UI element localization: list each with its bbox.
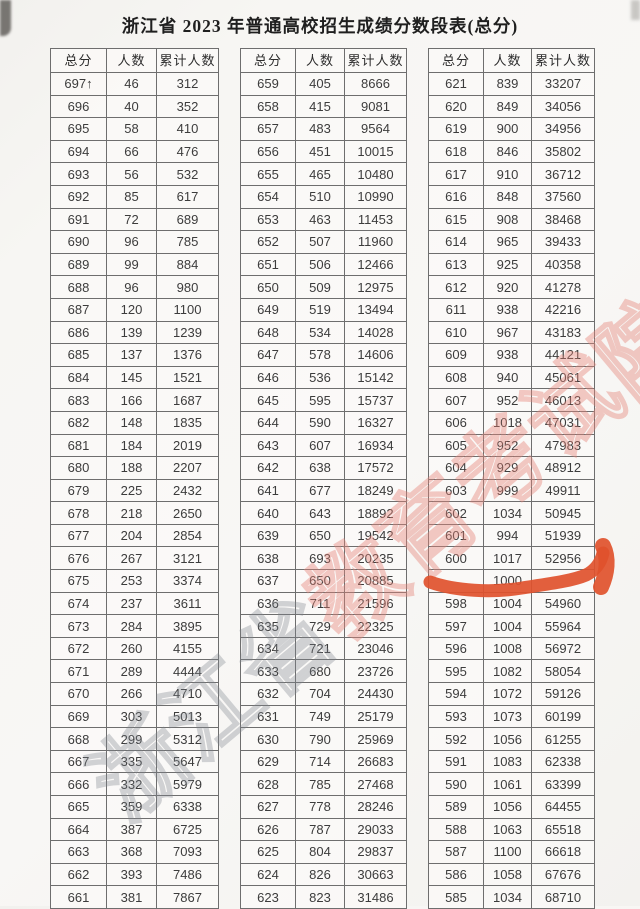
table-row: 61292041278 <box>429 276 595 299</box>
table-cell: 260 <box>107 637 157 660</box>
table-cell: 669 <box>51 705 107 728</box>
table-row: 62580429837 <box>241 841 407 864</box>
table-cell: 994 <box>484 524 532 547</box>
table-cell: 688 <box>51 276 107 299</box>
table-cell: 393 <box>107 863 157 886</box>
table-cell: 410 <box>157 118 219 141</box>
table-cell: 884 <box>157 253 219 276</box>
table-cell: 826 <box>296 863 345 886</box>
table-cell: 25969 <box>345 728 407 751</box>
table-cell: 5979 <box>157 773 219 796</box>
table-cell: 507 <box>296 231 345 254</box>
table-cell: 465 <box>296 163 345 186</box>
table-row: 6673355647 <box>51 750 219 773</box>
table-cell: 610 <box>429 321 484 344</box>
table-row: 62971426683 <box>241 750 407 773</box>
table-cell: 684 <box>51 366 107 389</box>
table-cell: 46013 <box>532 389 595 412</box>
table-cell: 10015 <box>345 140 407 163</box>
table-cell: 56 <box>107 163 157 186</box>
table-row: 62678729033 <box>241 818 407 841</box>
table-row: 68999884 <box>51 253 219 276</box>
col-header-cumulative: 累计人数 <box>345 49 407 73</box>
table-cell: 597 <box>429 615 484 638</box>
table-cell: 643 <box>296 502 345 525</box>
table-cell: 11960 <box>345 231 407 254</box>
table-cell: 4710 <box>157 683 219 706</box>
table-cell: 609 <box>429 344 484 367</box>
table-cell: 615 <box>429 208 484 231</box>
table-cell: 63399 <box>532 773 595 796</box>
table-cell: 29837 <box>345 841 407 864</box>
table-cell: 657 <box>241 118 296 141</box>
table-cell: 381 <box>107 886 157 909</box>
table-cell: 1082 <box>484 660 532 683</box>
table-cell: 49911 <box>532 479 595 502</box>
table-cell: 650 <box>241 276 296 299</box>
table-row: 591108362338 <box>429 750 595 773</box>
table-row: 65250711960 <box>241 231 407 254</box>
table-cell: 1004 <box>484 592 532 615</box>
table-row: 69096785 <box>51 231 219 254</box>
table-cell: 40358 <box>532 253 595 276</box>
table-cell: 2019 <box>157 434 219 457</box>
table-row: 6821481835 <box>51 411 219 434</box>
table-row: 62482630663 <box>241 863 407 886</box>
table-cell: 96 <box>107 276 157 299</box>
table-cell: 61255 <box>532 728 595 751</box>
table-cell: 23046 <box>345 637 407 660</box>
table-cell: 691 <box>51 208 107 231</box>
table-cell: 483 <box>296 118 345 141</box>
table-cell: 711 <box>296 592 345 615</box>
table-row: 598100454960 <box>429 592 595 615</box>
table-row: 6693035013 <box>51 705 219 728</box>
table-cell: 690 <box>51 231 107 254</box>
table-cell: 605 <box>429 434 484 457</box>
table-cell: 1056 <box>484 796 532 819</box>
table-cell: 680 <box>296 660 345 683</box>
table-cell: 602 <box>429 502 484 525</box>
table-row: 6722604155 <box>51 637 219 660</box>
table-row: 64263817572 <box>241 457 407 480</box>
table-cell: 667 <box>51 750 107 773</box>
table-cell: 15737 <box>345 389 407 412</box>
table-cell: 51939 <box>532 524 595 547</box>
table-cell: 908 <box>484 208 532 231</box>
table-cell: 1083 <box>484 750 532 773</box>
table-cell: 641 <box>241 479 296 502</box>
table-cell: 24430 <box>345 683 407 706</box>
table-row: 6792252432 <box>51 479 219 502</box>
table-cell: 34956 <box>532 118 595 141</box>
table-cell: 9564 <box>345 118 407 141</box>
table-cell: 592 <box>429 728 484 751</box>
table-cell: 43183 <box>532 321 595 344</box>
table-row: 63472123046 <box>241 637 407 660</box>
table-cell: 687 <box>51 298 107 321</box>
table-cell: 10990 <box>345 185 407 208</box>
table-row: 61193842216 <box>429 298 595 321</box>
table-cell: 785 <box>157 231 219 254</box>
table-cell: 635 <box>241 615 296 638</box>
table-cell: 640 <box>241 502 296 525</box>
table-cell: 607 <box>296 434 345 457</box>
table-cell: 677 <box>296 479 345 502</box>
table-cell: 664 <box>51 818 107 841</box>
table-row: 587110066618 <box>429 841 595 864</box>
table-cell: 37560 <box>532 185 595 208</box>
table-cell: 749 <box>296 705 345 728</box>
table-cell: 52956 <box>532 547 595 570</box>
table-cell: 790 <box>296 728 345 751</box>
table-cell: 56972 <box>532 637 595 660</box>
table-cell: 628 <box>241 773 296 796</box>
table-row: 62382331486 <box>241 886 407 909</box>
table-row: 65451010990 <box>241 185 407 208</box>
table-cell: 940 <box>484 366 532 389</box>
table-cell: 611 <box>429 298 484 321</box>
table-row: 590106163399 <box>429 773 595 796</box>
table-row: 65645110015 <box>241 140 407 163</box>
table-cell: 5647 <box>157 750 219 773</box>
table-row: 606101847031 <box>429 411 595 434</box>
table-row: 6584159081 <box>241 95 407 118</box>
table-row: 63572922325 <box>241 615 407 638</box>
table-cell: 30663 <box>345 863 407 886</box>
table-cell: 1058 <box>484 863 532 886</box>
table-cell: 7486 <box>157 863 219 886</box>
header-row: 总分 人数 累计人数 <box>241 49 407 73</box>
table-cell: 606 <box>429 411 484 434</box>
table-row: 594107259126 <box>429 683 595 706</box>
table-row: 64653615142 <box>241 366 407 389</box>
table-row: 65150612466 <box>241 253 407 276</box>
table-cell: 608 <box>429 366 484 389</box>
table-cell: 25179 <box>345 705 407 728</box>
table-cell: 600 <box>429 547 484 570</box>
table-cell: 653 <box>241 208 296 231</box>
table-cell: 299 <box>107 728 157 751</box>
table-row: 6752533374 <box>51 570 219 593</box>
table-cell: 405 <box>296 73 345 96</box>
table-row: 61884635802 <box>429 140 595 163</box>
table-cell: 1063 <box>484 818 532 841</box>
table-cell: 692 <box>51 185 107 208</box>
table-cell: 729 <box>296 615 345 638</box>
table-cell: 3374 <box>157 570 219 593</box>
table-cell: 58 <box>107 118 157 141</box>
table-cell: 676 <box>51 547 107 570</box>
table-cell: 910 <box>484 163 532 186</box>
table-cell: 23726 <box>345 660 407 683</box>
table-cell: 188 <box>107 457 157 480</box>
table-cell: 359 <box>107 796 157 819</box>
table-cell: 697↑ <box>51 73 107 96</box>
table-row: 6613817867 <box>51 886 219 909</box>
table-cell: 604 <box>429 457 484 480</box>
table-row: 6861391239 <box>51 321 219 344</box>
table-row: 60993844121 <box>429 344 595 367</box>
table-cell: 267 <box>107 547 157 570</box>
table-cell: 585 <box>429 886 484 909</box>
table-cell: 14606 <box>345 344 407 367</box>
table-cell: 682 <box>51 411 107 434</box>
table-row: 63270424430 <box>241 683 407 706</box>
table-cell <box>532 570 595 593</box>
table-cell: 17572 <box>345 457 407 480</box>
header-row: 总分 人数 累计人数 <box>51 49 219 73</box>
table-cell: 848 <box>484 185 532 208</box>
table-cell: 613 <box>429 253 484 276</box>
table-cell: 654 <box>241 185 296 208</box>
table-cell: 631 <box>241 705 296 728</box>
table-cell: 85 <box>107 185 157 208</box>
table-cell: 952 <box>484 389 532 412</box>
table-cell <box>429 570 484 593</box>
table-row: 6633687093 <box>51 841 219 864</box>
table-cell: 42216 <box>532 298 595 321</box>
table-cell: 671 <box>51 660 107 683</box>
table-cell: 675 <box>51 570 107 593</box>
table-row: 585103468710 <box>429 886 595 909</box>
table-cell: 999 <box>484 479 532 502</box>
table-cell: 59126 <box>532 683 595 706</box>
table-row: 602103450945 <box>429 502 595 525</box>
table-cell: 7867 <box>157 886 219 909</box>
table-cell: 2207 <box>157 457 219 480</box>
table-row: 589105664455 <box>429 796 595 819</box>
table-cell: 33207 <box>532 73 595 96</box>
table-row: 60595247983 <box>429 434 595 457</box>
col-header-total-score: 总分 <box>429 49 484 73</box>
table-cell: 629 <box>241 750 296 773</box>
table-cell: 1000 <box>484 570 532 593</box>
table-cell: 22325 <box>345 615 407 638</box>
table-cell: 598 <box>429 592 484 615</box>
table-cell: 1004 <box>484 615 532 638</box>
table-cell: 674 <box>51 592 107 615</box>
table-cell: 5013 <box>157 705 219 728</box>
col-header-count: 人数 <box>107 49 157 73</box>
table-cell: 1376 <box>157 344 219 367</box>
table-row: 6762673121 <box>51 547 219 570</box>
table-cell: 3895 <box>157 615 219 638</box>
table-cell: 27468 <box>345 773 407 796</box>
table-row: 6623937486 <box>51 863 219 886</box>
table-cell: 266 <box>107 683 157 706</box>
table-cell: 253 <box>107 570 157 593</box>
table-cell: 20235 <box>345 547 407 570</box>
table-cell: 647 <box>241 344 296 367</box>
table-cell: 624 <box>241 863 296 886</box>
table-cell: 35802 <box>532 140 595 163</box>
table-cell: 19542 <box>345 524 407 547</box>
table-cell: 66 <box>107 140 157 163</box>
table-row: 63765020885 <box>241 570 407 593</box>
table-cell: 1056 <box>484 728 532 751</box>
table-row: 6871201100 <box>51 298 219 321</box>
table-cell: 601 <box>429 524 484 547</box>
table-row: 61990034956 <box>429 118 595 141</box>
table-cell: 1008 <box>484 637 532 660</box>
table-cell: 54960 <box>532 592 595 615</box>
table-row: 64757814606 <box>241 344 407 367</box>
table-cell: 659 <box>241 73 296 96</box>
table-cell: 6725 <box>157 818 219 841</box>
table-cell: 13494 <box>345 298 407 321</box>
header-row: 总分 人数 累计人数 <box>429 49 595 73</box>
table-row: 60795246013 <box>429 389 595 412</box>
table-cell: 11453 <box>345 208 407 231</box>
table-cell: 595 <box>429 660 484 683</box>
table-cell: 1835 <box>157 411 219 434</box>
table-cell: 66618 <box>532 841 595 864</box>
table-cell: 689 <box>157 208 219 231</box>
table-cell: 578 <box>296 344 345 367</box>
table-cell: 632 <box>241 683 296 706</box>
table-cell: 50945 <box>532 502 595 525</box>
score-table-left: 总分 人数 累计人数 697↑4631269640352695584106946… <box>50 48 219 909</box>
page-title: 浙江省 2023 年普通高校招生成绩分数段表(总分) <box>0 13 640 38</box>
table-row: 63671121596 <box>241 592 407 615</box>
table-row: 6742373611 <box>51 592 219 615</box>
table-cell: 1072 <box>484 683 532 706</box>
table-cell: 67676 <box>532 863 595 886</box>
table-cell: 661 <box>51 886 107 909</box>
table-cell: 47983 <box>532 434 595 457</box>
table-cell: 637 <box>241 570 296 593</box>
table-cell: 683 <box>51 389 107 412</box>
table-cell: 846 <box>484 140 532 163</box>
table-row: 61590838468 <box>429 208 595 231</box>
table-row: 64559515737 <box>241 389 407 412</box>
table-cell: 929 <box>484 457 532 480</box>
table-cell: 651 <box>241 253 296 276</box>
table-cell: 721 <box>296 637 345 660</box>
table-cell: 335 <box>107 750 157 773</box>
table-cell: 1017 <box>484 547 532 570</box>
table-row: 6712894444 <box>51 660 219 683</box>
table-cell: 596 <box>429 637 484 660</box>
table-cell: 303 <box>107 705 157 728</box>
table-row: 64951913494 <box>241 298 407 321</box>
table-cell: 634 <box>241 637 296 660</box>
table-cell: 679 <box>51 479 107 502</box>
table-cell: 184 <box>107 434 157 457</box>
table-cell: 938 <box>484 344 532 367</box>
table-row: 64167718249 <box>241 479 407 502</box>
table-cell: 415 <box>296 95 345 118</box>
table-cell: 218 <box>107 502 157 525</box>
table-row: 65546510480 <box>241 163 407 186</box>
table-cell: 665 <box>51 796 107 819</box>
table-cell: 627 <box>241 796 296 819</box>
table-cell: 666 <box>51 773 107 796</box>
table-cell: 643 <box>241 434 296 457</box>
table-cell: 650 <box>296 524 345 547</box>
table-row: 64459016327 <box>241 411 407 434</box>
table-cell: 16327 <box>345 411 407 434</box>
table-cell: 920 <box>484 276 532 299</box>
table-row: 60199451939 <box>429 524 595 547</box>
table-row: 61496539433 <box>429 231 595 254</box>
table-cell: 137 <box>107 344 157 367</box>
table-cell: 4155 <box>157 637 219 660</box>
table-cell: 590 <box>429 773 484 796</box>
table-row: 6732843895 <box>51 615 219 638</box>
table-cell: 673 <box>51 615 107 638</box>
table-row: 6841451521 <box>51 366 219 389</box>
photo-edge-artifact-top-left <box>0 0 11 36</box>
table-row: 62084934056 <box>429 95 595 118</box>
table-cell: 20885 <box>345 570 407 593</box>
table-cell: 8666 <box>345 73 407 96</box>
table-cell: 38468 <box>532 208 595 231</box>
col-header-total-score: 总分 <box>51 49 107 73</box>
table-cell: 1034 <box>484 502 532 525</box>
table-cell: 45061 <box>532 366 595 389</box>
table-cell: 60199 <box>532 705 595 728</box>
table-cell: 3121 <box>157 547 219 570</box>
photo-edge-artifact-top-right <box>631 0 640 20</box>
table-row: 60399949911 <box>429 479 595 502</box>
table-cell: 616 <box>429 185 484 208</box>
table-cell: 510 <box>296 185 345 208</box>
table-cell: 26683 <box>345 750 407 773</box>
table-row: 69558410 <box>51 118 219 141</box>
table-cell: 967 <box>484 321 532 344</box>
table-cell: 630 <box>241 728 296 751</box>
table-cell: 534 <box>296 321 345 344</box>
table-row: 63965019542 <box>241 524 407 547</box>
table-cell: 21596 <box>345 592 407 615</box>
table-cell: 642 <box>241 457 296 480</box>
table-row: 61684837560 <box>429 185 595 208</box>
table-cell: 649 <box>241 298 296 321</box>
table-row: 63869320235 <box>241 547 407 570</box>
table-row: 588106365518 <box>429 818 595 841</box>
table-row: 64360716934 <box>241 434 407 457</box>
table-cell: 646 <box>241 366 296 389</box>
table-row: 63174925179 <box>241 705 407 728</box>
table-cell: 237 <box>107 592 157 615</box>
table-cell: 5312 <box>157 728 219 751</box>
table-cell: 787 <box>296 818 345 841</box>
table-row: 595108258054 <box>429 660 595 683</box>
table-cell: 648 <box>241 321 296 344</box>
table-cell: 980 <box>157 276 219 299</box>
table-row: 61392540358 <box>429 253 595 276</box>
table-cell: 696 <box>51 95 107 118</box>
table-row: 60894045061 <box>429 366 595 389</box>
table-cell: 589 <box>429 796 484 819</box>
table-cell: 12466 <box>345 253 407 276</box>
table-cell: 614 <box>429 231 484 254</box>
table-cell: 638 <box>296 457 345 480</box>
table-cell: 625 <box>241 841 296 864</box>
score-table-right: 总分 人数 累计人数 62183933207620849340566199003… <box>428 48 595 909</box>
table-cell: 680 <box>51 457 107 480</box>
table-cell: 607 <box>429 389 484 412</box>
table-cell: 714 <box>296 750 345 773</box>
table-cell: 64455 <box>532 796 595 819</box>
table-cell: 16934 <box>345 434 407 457</box>
table-cell: 670 <box>51 683 107 706</box>
table-cell: 47031 <box>532 411 595 434</box>
table-cell: 284 <box>107 615 157 638</box>
col-header-cumulative: 累计人数 <box>157 49 219 73</box>
